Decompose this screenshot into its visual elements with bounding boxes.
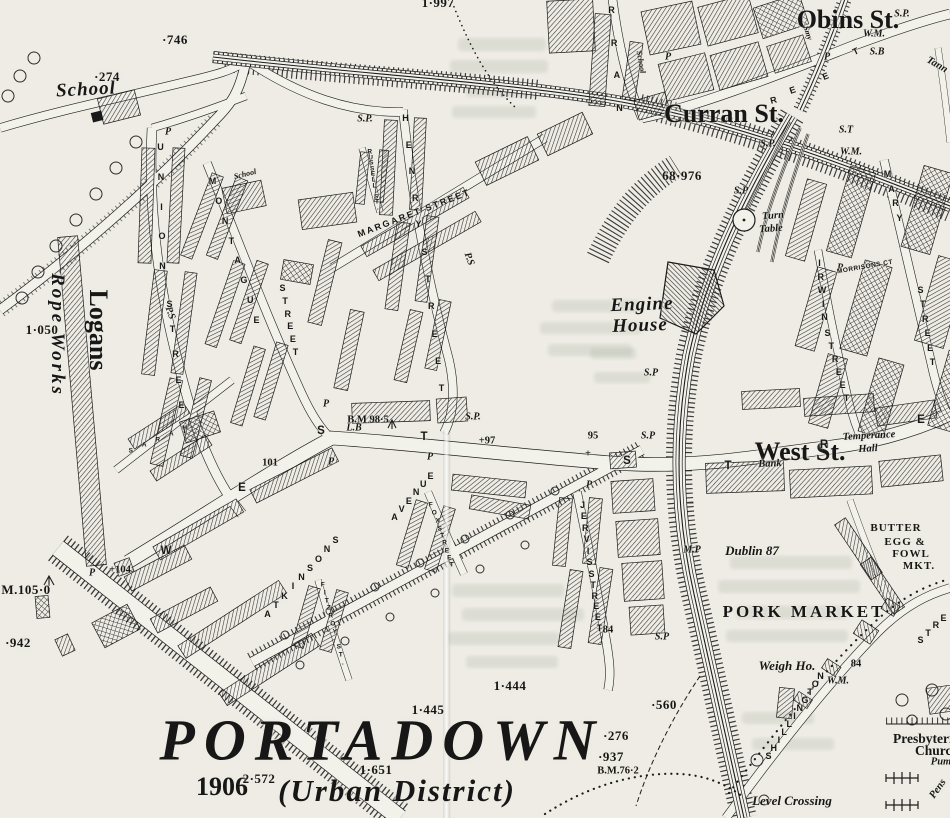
map-label: P: [328, 457, 334, 468]
map-label: ·746: [162, 32, 188, 48]
russell-street-label: .: [377, 205, 379, 212]
map-label: S.P.: [465, 412, 480, 423]
mary-street-label: M: [884, 169, 893, 179]
map-label: Hall: [858, 443, 878, 455]
mary-street-label: A: [888, 184, 896, 194]
map-label: T: [170, 324, 177, 334]
map-label: E: [836, 367, 843, 377]
henry-street-label: E: [406, 140, 413, 150]
map-label: S.P.: [357, 114, 372, 125]
montague-street-label: G: [240, 275, 248, 285]
map-label: 68·976: [662, 168, 702, 184]
map-label: ·560: [651, 697, 677, 713]
map-label: E: [287, 321, 294, 331]
union-street-label: U: [157, 142, 165, 152]
map-label: A: [391, 512, 399, 522]
map-label: R: [428, 301, 436, 311]
atkinsons-avenue-label: N: [298, 572, 306, 582]
map-label: W.M.: [827, 676, 849, 687]
irwin-street-label: W: [818, 285, 828, 295]
map-label: E: [925, 328, 932, 338]
map-label: M.P: [683, 545, 701, 556]
map-label: R: [172, 349, 180, 359]
map-label: S.P: [641, 431, 655, 442]
annotation-year: 1906: [196, 772, 248, 802]
map-label: S: [588, 569, 595, 579]
west-street-letter: S: [317, 425, 325, 437]
map-label: S.P: [655, 632, 669, 643]
map-label: P: [165, 127, 171, 138]
west-street-letter: E: [238, 482, 246, 494]
shillington-street-label: N: [817, 671, 825, 681]
map-label: P: [586, 480, 592, 491]
map-label: S.P.: [760, 139, 775, 150]
fitzroy-street-label: T: [325, 597, 329, 604]
curran-street-letters: R: [611, 38, 619, 48]
map-label: 95: [588, 431, 599, 442]
jervis-street-label: I: [587, 546, 591, 556]
map-label: T: [440, 533, 444, 540]
map-label: S.B: [870, 47, 885, 58]
map-label: House: [612, 314, 668, 338]
map-label: Table: [759, 223, 783, 236]
map-label: 101: [262, 458, 278, 469]
irwin-street-label: N: [821, 312, 829, 322]
map-label: S: [166, 299, 173, 309]
montague-street-label: O: [215, 196, 223, 206]
fox-street-label: F: [429, 502, 433, 509]
fox-street-label: O: [432, 510, 438, 517]
fitzroy-street-label: O: [330, 621, 336, 628]
jervis-street-label: E: [581, 511, 588, 521]
atkinsons-avenue-label: O: [315, 554, 323, 564]
montague-street-label: N: [222, 216, 230, 226]
map-label: EGG &: [884, 536, 925, 548]
map-label: E: [595, 612, 602, 622]
level-crossing-label: Level Crossing: [752, 793, 832, 809]
map-label: T: [439, 383, 446, 393]
irwin-street-label: I: [818, 258, 822, 268]
pork-market-label: PORK MARKET: [723, 602, 886, 622]
map-label: S: [917, 285, 924, 295]
henry-street-label: N: [409, 166, 417, 176]
union-street-label: I: [160, 202, 164, 212]
montague-street-label: U: [247, 295, 255, 305]
map-label: ·937: [598, 749, 624, 765]
atkinsons-avenue-label: T: [273, 600, 280, 610]
map-label: T: [282, 296, 289, 306]
map-label: E: [432, 329, 439, 339]
map-label: S.P: [734, 186, 748, 197]
union-street-label: N: [159, 261, 167, 271]
shillington-street-label: L: [787, 719, 794, 729]
mary-street-label: Y: [896, 213, 903, 223]
map-label: E: [940, 613, 947, 623]
map-label: 1·997: [422, 0, 455, 11]
dublin-distance-label: Dublin 87: [725, 543, 779, 559]
map-label: E: [406, 496, 413, 506]
map-label: R: [284, 309, 292, 319]
west-street-letter: T: [420, 431, 427, 443]
sarah-street-label: H: [182, 425, 187, 432]
map-subtitle: (Urban District): [278, 773, 516, 809]
map-label: Pum: [931, 757, 950, 768]
map-label: R: [591, 591, 599, 601]
west-street-letter: E: [917, 414, 925, 426]
map-label: ·274: [94, 69, 120, 85]
atkinsons-avenue-label: K: [281, 591, 289, 601]
map-label: R: [922, 314, 930, 324]
west-street-letter: R: [820, 439, 828, 451]
fitzroy-street-label: S: [337, 644, 342, 651]
map-label: W.M.: [840, 147, 862, 158]
west-street-letter: W: [161, 545, 172, 557]
obins-street-letter: R: [769, 94, 779, 106]
map-label: R: [442, 540, 447, 547]
fitzroy-street-label: .: [342, 660, 344, 667]
mary-street-label: R: [892, 198, 900, 208]
map-label: S: [279, 283, 286, 293]
map-label: +: [585, 449, 591, 460]
map-label: 1·444: [494, 678, 527, 694]
map-label: E: [178, 400, 185, 410]
map-label: T: [597, 623, 604, 633]
annotation-logans: Logans: [83, 290, 113, 371]
map-label: R: [933, 620, 941, 630]
atkinsons-avenue-label: S: [332, 535, 339, 545]
map-label: 2·572: [243, 771, 276, 787]
fitzroy-street-label: F: [321, 582, 325, 589]
jervis-street-label: R: [582, 523, 590, 533]
jervis-street-label: V: [584, 534, 591, 544]
union-street-label: N: [158, 172, 166, 182]
map-label: E: [435, 356, 442, 366]
map-label: L.B: [346, 423, 361, 434]
map-label: P: [665, 52, 671, 63]
map-label: E: [447, 554, 452, 561]
map-label: E: [840, 380, 847, 390]
map-label: E: [290, 334, 297, 344]
map-label: S.T: [839, 125, 853, 136]
map-label: T: [930, 357, 937, 367]
map-label: P: [323, 399, 329, 410]
fitzroy-street-label: I: [324, 589, 326, 596]
map-label: +104: [109, 565, 131, 576]
map-label: 84: [851, 659, 862, 670]
map-label: E: [175, 375, 182, 385]
map-sheet: PORTADOWN(Urban District)1906Obins St.Cu…: [0, 0, 950, 818]
map-label: E: [427, 471, 434, 481]
map-label: S: [824, 328, 831, 338]
map-label: +97: [479, 436, 495, 447]
jervis-street-label: J: [580, 500, 586, 510]
fox-street-label: X: [436, 518, 441, 525]
russell-street-label: L: [373, 182, 377, 189]
map-label: 1·651: [360, 762, 393, 778]
map-label: T: [829, 341, 836, 351]
fitzroy-street-label: T: [339, 652, 343, 659]
sarah-street-label: A: [142, 442, 147, 449]
map-label: T: [920, 299, 927, 309]
map-label: S: [917, 635, 924, 645]
atkinsons-avenue-label: A: [264, 609, 272, 619]
west-street-letter: T: [724, 460, 731, 472]
map-label: V: [399, 504, 406, 514]
map-label: T: [590, 580, 597, 590]
west-street-letter: S: [623, 455, 631, 467]
map-label: ·942: [5, 635, 31, 651]
jervis-street-label: S: [586, 557, 593, 567]
map-label: M.105·0: [1, 582, 50, 598]
map-label: P: [89, 568, 95, 579]
map-label: T: [925, 628, 932, 638]
montague-street-label: E: [253, 315, 260, 325]
atkinsons-avenue-label: N: [324, 544, 332, 554]
sarah-street-label: R: [155, 436, 160, 443]
map-label: T: [425, 274, 432, 284]
map-label: T: [293, 347, 300, 357]
montague-street-label: T: [229, 236, 236, 246]
map-label: E: [445, 547, 450, 554]
montague-street-label: A: [234, 255, 242, 265]
map-label: E: [927, 343, 934, 353]
map-label: P: [427, 452, 433, 463]
map-label: E: [593, 601, 600, 611]
weigh-house-label: Weigh Ho.: [759, 658, 816, 674]
sarah-street-label: S: [129, 448, 134, 455]
map-label: S: [421, 247, 428, 257]
map-label: 1·445: [412, 702, 445, 718]
montague-street-label: M: [209, 176, 218, 186]
curran-street-letters: N: [616, 103, 624, 113]
sarah-street-label: A: [169, 430, 174, 437]
map-label: T: [450, 562, 454, 569]
fitzroy-street-label: Y: [333, 628, 338, 635]
curran-street-letters: A: [614, 70, 622, 80]
map-label: R: [832, 354, 840, 364]
fitzroy-street-label: R: [328, 613, 333, 620]
annotation-curran-st: Curran St.: [664, 99, 784, 129]
curran-street-letters: R: [608, 5, 616, 15]
map-label: S: [438, 526, 443, 533]
atkinsons-avenue-label: S: [307, 563, 314, 573]
map-label: B.M.76·2: [597, 766, 638, 777]
map-label: MKT.: [903, 560, 935, 572]
union-street-label: O: [158, 231, 166, 241]
map-label: FOWL: [892, 548, 930, 560]
irwin-street-label: I: [822, 299, 826, 309]
map-label: W.M.: [863, 29, 885, 40]
henry-street-label: H: [402, 113, 410, 123]
map-label: S.P.: [894, 9, 909, 20]
map-label: ·276: [603, 728, 629, 744]
map-label: T: [844, 393, 851, 403]
atkinsons-avenue-label: I: [292, 581, 296, 591]
henry-street-label: Y: [415, 219, 422, 229]
bank-label: Bank: [758, 458, 782, 470]
map-label: S.P: [644, 368, 658, 379]
map-label: 1·050: [26, 322, 59, 338]
henry-street-label: R: [412, 193, 420, 203]
turn-table-label: Turn: [762, 210, 785, 222]
irwin-street-label: R: [818, 272, 826, 282]
fitzroy-street-label: Z: [327, 605, 331, 612]
map-label: U: [420, 479, 428, 489]
butter-market-label: BUTTER: [870, 522, 921, 534]
map-label: P: [824, 52, 830, 63]
